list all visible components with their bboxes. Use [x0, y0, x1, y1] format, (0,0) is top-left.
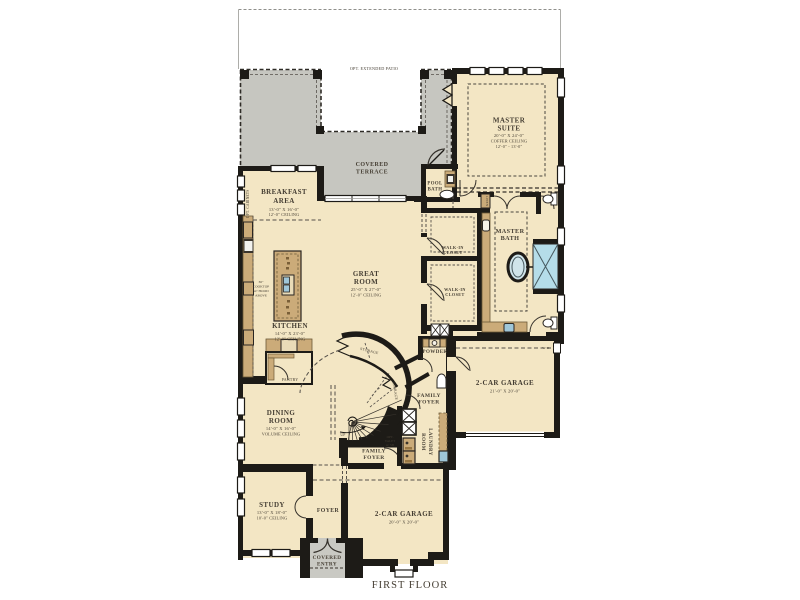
- svg-text:OPT. EXTENDED PATIO: OPT. EXTENDED PATIO: [350, 66, 398, 71]
- svg-text:12'-0" - 13'-0": 12'-0" - 13'-0": [496, 144, 523, 149]
- svg-text:FOYER: FOYER: [317, 508, 340, 514]
- svg-text:2-CAR GARAGE: 2-CAR GARAGE: [476, 379, 534, 387]
- svg-text:36": 36": [259, 280, 265, 284]
- svg-text:COOKTOP: COOKTOP: [253, 285, 270, 289]
- svg-text:w/ SB: w/ SB: [386, 443, 395, 447]
- svg-text:BREAKFAST: BREAKFAST: [261, 188, 307, 196]
- svg-text:ABOVE: ABOVE: [255, 294, 267, 298]
- svg-text:TERRACE: TERRACE: [356, 170, 388, 176]
- svg-text:2-CAR GARAGE: 2-CAR GARAGE: [375, 510, 433, 518]
- svg-text:12'-0" CEILING: 12'-0" CEILING: [275, 337, 306, 342]
- svg-text:STUDY: STUDY: [259, 501, 285, 509]
- svg-text:FOYER: FOYER: [418, 400, 440, 406]
- svg-text:GREAT: GREAT: [353, 270, 379, 278]
- svg-text:14'-0" X 16'-0": 14'-0" X 16'-0": [266, 426, 296, 431]
- svg-text:12'-0" CEILING: 12'-0" CEILING: [269, 212, 300, 217]
- svg-text:BATH: BATH: [428, 188, 443, 193]
- svg-text:CLOSET: CLOSET: [445, 292, 464, 297]
- svg-text:POWDER: POWDER: [423, 350, 448, 355]
- svg-text:W/ HOOD: W/ HOOD: [253, 289, 269, 293]
- svg-text:PANTRY: PANTRY: [282, 377, 299, 382]
- svg-text:OPT. CABINETS: OPT. CABINETS: [246, 190, 250, 219]
- svg-text:ENTRY: ENTRY: [317, 562, 337, 568]
- svg-text:14'-0" X 23'-0": 14'-0" X 23'-0": [275, 331, 305, 336]
- svg-text:LAUNDRY: LAUNDRY: [427, 428, 432, 456]
- svg-text:COVERED: COVERED: [356, 162, 389, 168]
- svg-text:POOL: POOL: [427, 182, 442, 187]
- svg-text:UP: UP: [340, 433, 345, 437]
- svg-text:FIRST FLOOR: FIRST FLOOR: [372, 580, 448, 591]
- svg-text:DINING: DINING: [267, 409, 296, 417]
- svg-text:COFFER CEILING: COFFER CEILING: [491, 139, 527, 144]
- svg-text:CLOSET: CLOSET: [443, 250, 462, 255]
- svg-text:12'-0" CEILING: 12'-0" CEILING: [351, 293, 382, 298]
- svg-text:FAMILY: FAMILY: [362, 449, 386, 455]
- svg-text:COVERED: COVERED: [313, 555, 342, 561]
- svg-text:FOYER: FOYER: [363, 455, 385, 461]
- svg-text:ROOM: ROOM: [354, 278, 378, 286]
- svg-text:20'-0" X 24'-0": 20'-0" X 24'-0": [494, 133, 524, 138]
- svg-text:10'-0" CEILING: 10'-0" CEILING: [257, 516, 288, 521]
- svg-text:ROOM: ROOM: [420, 433, 425, 451]
- svg-text:AREA: AREA: [273, 197, 294, 205]
- svg-text:25'-0" X 27'-0": 25'-0" X 27'-0": [351, 287, 381, 292]
- svg-text:FAMILY: FAMILY: [417, 393, 441, 399]
- svg-text:MASTER: MASTER: [493, 117, 526, 125]
- svg-text:W/H: W/H: [542, 346, 550, 350]
- svg-text:21'-0" X 20'-0": 21'-0" X 20'-0": [490, 389, 520, 394]
- svg-text:VOLUME CEILING: VOLUME CEILING: [262, 432, 301, 437]
- svg-text:MASTER: MASTER: [496, 228, 525, 235]
- svg-text:13'-0" X 18'-0": 13'-0" X 18'-0": [257, 510, 287, 515]
- svg-text:LINEN: LINEN: [485, 196, 489, 207]
- svg-text:BATH: BATH: [501, 235, 520, 242]
- svg-text:ROOM: ROOM: [269, 417, 293, 425]
- svg-text:KITCHEN: KITCHEN: [272, 322, 308, 330]
- svg-text:20'-0" X 20'-0": 20'-0" X 20'-0": [389, 520, 419, 525]
- svg-text:SUITE: SUITE: [497, 125, 520, 133]
